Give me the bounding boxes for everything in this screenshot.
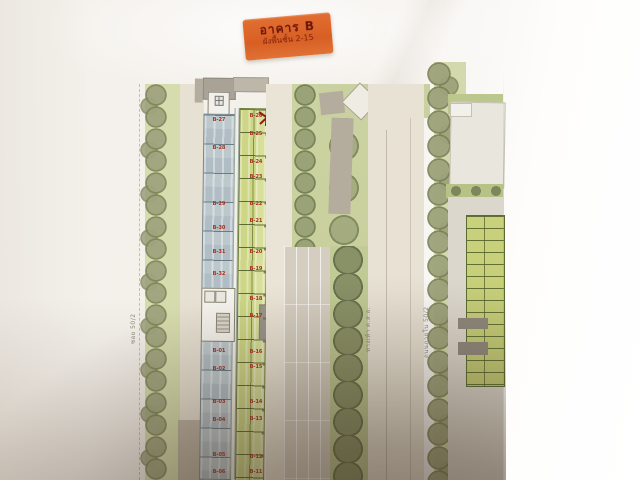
unit-label: B-24 [247, 160, 265, 165]
central-garden-lower [330, 246, 368, 480]
unit-label: B-01 [206, 349, 232, 354]
garden-path [319, 91, 345, 115]
unit-label: B-02 [206, 367, 232, 372]
toilet-room [204, 291, 215, 303]
unit-label: B-17 [247, 314, 265, 319]
sidewalk-label: ทางเท้า ค.ส.ล. [366, 307, 372, 352]
unit-label: B-20 [247, 250, 265, 255]
unit-label: B-27 [206, 118, 232, 123]
roof-structure-right [233, 77, 269, 92]
right-green-band-mid [446, 184, 503, 198]
unit-label: B-29 [206, 202, 232, 207]
building-sticker: อาคาร B ผังพื้นชั้น 2-15 [242, 12, 333, 61]
unit-label: B-25 [247, 132, 265, 137]
stair-symbol [216, 313, 230, 333]
unit-label: B-19 [247, 267, 265, 272]
right-building-tab [450, 103, 472, 117]
right-building-wing [458, 318, 488, 329]
unit-label: B-03 [206, 400, 232, 405]
unit-label: B-11 [247, 470, 265, 475]
unit-label: B-15 [247, 365, 265, 370]
unit-label: B-32 [206, 272, 232, 277]
unit-label: B-22 [247, 202, 265, 207]
photographed-site-plan: อาคาร B ผังพื้นชั้น 2-15 ซอย 50/2 B-27 B… [0, 0, 640, 480]
unit-label: B-06 [206, 470, 232, 475]
left-boundary-label: ซอย 50/2 [131, 313, 137, 344]
garden-walkway [328, 118, 353, 215]
right-building-wing [458, 342, 488, 355]
unit-column-left-lower [199, 340, 233, 480]
parking-grid [284, 246, 330, 480]
unit-label: B-28 [206, 146, 232, 151]
mid-lobby [201, 288, 236, 342]
unit-label: B-16 [247, 350, 265, 355]
unit-label: B-13 [247, 417, 265, 422]
unit-label: B-21 [247, 219, 265, 224]
tree-row-left [140, 84, 180, 480]
unit-label: B-18 [247, 297, 265, 302]
internal-road [368, 84, 424, 480]
right-building-unit-grid [466, 215, 505, 387]
unit-label: B-14 [247, 400, 265, 405]
elevator-symbol [215, 96, 224, 106]
unit-label: B-23 [247, 175, 265, 180]
unit-label: B-12 [247, 455, 265, 460]
toilet-room [215, 291, 226, 303]
unit-label: B-05 [206, 453, 232, 458]
unit-label: B-30 [206, 226, 232, 231]
unit-label: B-04 [206, 418, 232, 423]
unit-label: B-31 [206, 250, 232, 255]
top-lobby [208, 92, 230, 116]
